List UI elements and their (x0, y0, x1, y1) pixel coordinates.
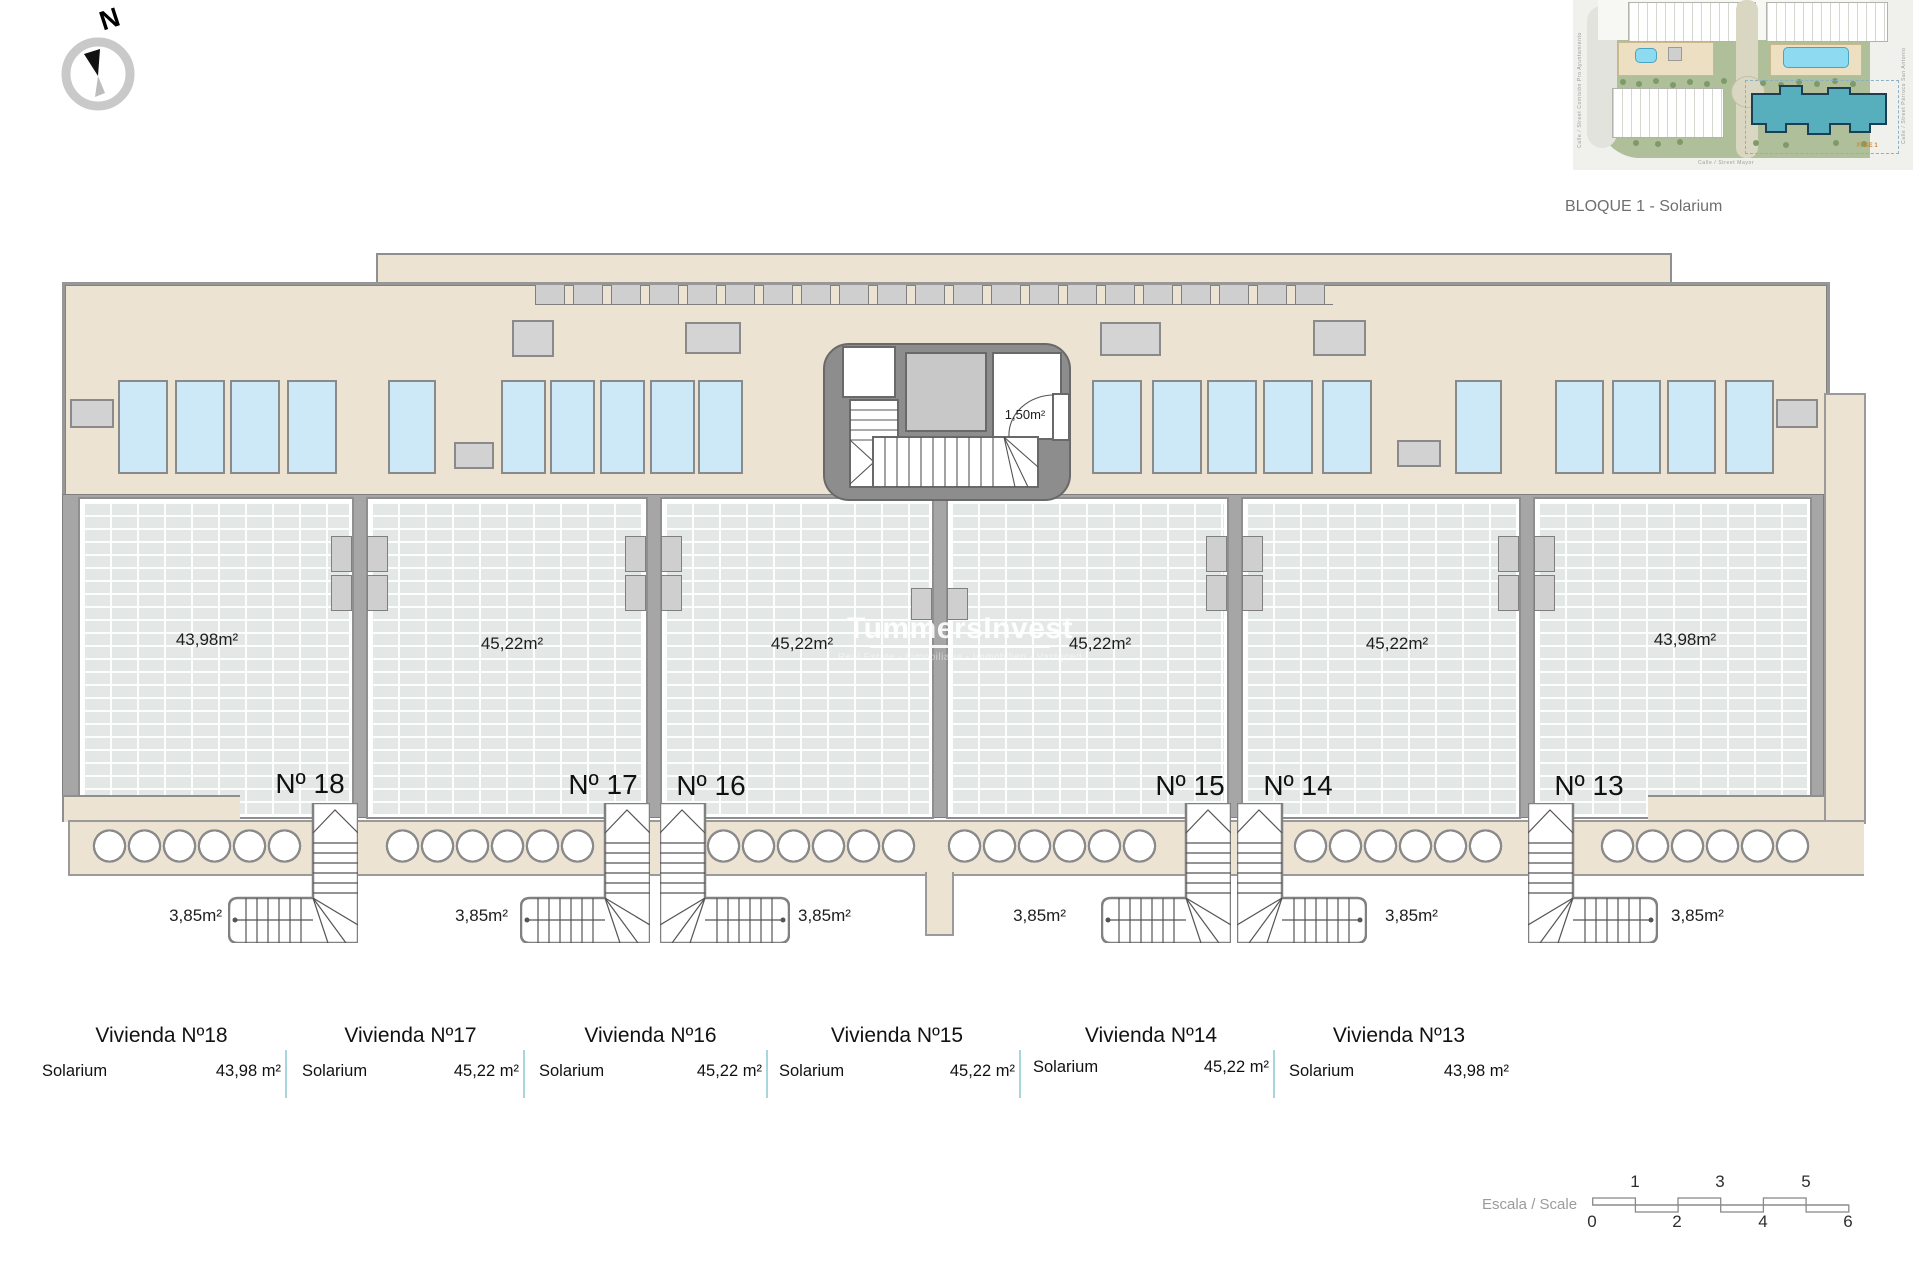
sun-panel (175, 380, 225, 474)
legend-title: Vivienda Nº13 (1285, 1024, 1513, 1048)
legend-column-16: Vivienda Nº16 Solarium45,22 m² (535, 1024, 766, 1098)
legend-column-18: Vivienda Nº18 Solarium43,98 m² (38, 1024, 285, 1098)
sun-panel (698, 380, 743, 474)
exterior-stair-14 (1237, 803, 1367, 943)
tile-floor (1538, 502, 1807, 814)
watermark-subtitle: Real Estate - Inmobiliaria - Immobilien … (810, 652, 1110, 663)
sun-panel (388, 380, 436, 474)
legend-divider (1273, 1050, 1275, 1098)
legend-room: Solarium (1289, 1062, 1354, 1081)
exterior-stair-18 (228, 803, 358, 943)
stair-area-label-14: 3,85m² (1385, 906, 1467, 926)
compass: N (50, 4, 160, 124)
roof-vent (1534, 575, 1555, 611)
sun-panel (1092, 380, 1142, 474)
exterior-stair-13 (1528, 803, 1658, 943)
roof-vent (1498, 575, 1519, 611)
solarium-area-label-17: 45,22m² (481, 634, 543, 654)
site-phase-label: FASE 1 (1857, 143, 1878, 149)
roof-vent (661, 575, 682, 611)
side-path-right (1824, 393, 1866, 824)
stair-area-label-13: 3,85m² (1671, 906, 1753, 926)
legend-divider (523, 1050, 525, 1098)
skylight (685, 322, 741, 354)
site-trees-row-2 (1633, 140, 1639, 146)
sun-panel (501, 380, 546, 474)
skylight (1100, 322, 1161, 356)
scale-tick: 4 (1758, 1212, 1767, 1232)
site-plan-thumbnail: FASE 1 Calle / Street Comisión Pro Ayunt… (1573, 0, 1913, 170)
solarium-area-label-15: 45,22m² (1069, 634, 1131, 654)
legend-divider (766, 1050, 768, 1098)
legend-room: Solarium (779, 1062, 844, 1081)
sun-panel (1322, 380, 1372, 474)
sun-panel (287, 380, 337, 474)
legend-divider (285, 1050, 287, 1098)
site-deck-left (1618, 42, 1714, 76)
exterior-stair-16 (660, 803, 790, 943)
solarium-area-label-13: 43,98m² (1654, 630, 1716, 650)
unit-number-14: Nº 14 (1263, 770, 1332, 802)
stair-area-label-17: 3,85m² (426, 906, 508, 926)
sun-panel (230, 380, 280, 474)
legend-divider (1019, 1050, 1021, 1098)
thumbnail-caption: BLOQUE 1 - Solarium (1565, 198, 1722, 216)
legend-value: 43,98 m² (1444, 1062, 1509, 1081)
legend-title: Vivienda Nº15 (775, 1024, 1019, 1048)
legend-room: Solarium (1033, 1058, 1098, 1077)
scale-bar-icon (1592, 1192, 1850, 1218)
unit-number-16: Nº 16 (676, 770, 745, 802)
walkway-stem (925, 872, 954, 936)
legend-title: Vivienda Nº18 (38, 1024, 285, 1048)
roof-vent (1206, 536, 1227, 572)
roof-vent (331, 575, 352, 611)
legend-title: Vivienda Nº14 (1029, 1024, 1273, 1048)
roof-vent (1242, 575, 1263, 611)
legend-room: Solarium (42, 1062, 107, 1081)
legend-room: Solarium (302, 1062, 367, 1081)
boundary-step-left (62, 795, 240, 822)
sun-panel (600, 380, 645, 474)
skylight (1313, 320, 1366, 356)
sun-panel (1612, 380, 1661, 474)
unit-number-13: Nº 13 (1554, 770, 1623, 802)
tile-floor (371, 502, 643, 814)
site-pool-large (1783, 47, 1849, 68)
sun-panel (118, 380, 168, 474)
site-pool-small (1635, 48, 1657, 63)
ac-unit-right (1776, 399, 1818, 428)
street-label-right: Calle / Street Párroco San Antonio (1901, 14, 1907, 144)
roof-vent (367, 575, 388, 611)
legend-column-13: Vivienda Nº13 Solarium43,98 m² (1285, 1024, 1513, 1098)
roof-vent (625, 575, 646, 611)
roof-vent (1534, 536, 1555, 572)
solarium-area-label-18: 43,98m² (176, 630, 238, 650)
site-trees-row (1620, 79, 1626, 85)
roof-vent (1242, 536, 1263, 572)
exterior-stair-17 (520, 803, 650, 943)
legend-title: Vivienda Nº16 (535, 1024, 766, 1048)
legend-value: 43,98 m² (216, 1062, 281, 1081)
compass-icon (50, 18, 150, 118)
legend-value: 45,22 m² (950, 1062, 1015, 1081)
skylight (512, 320, 554, 357)
core-area-label: 1,50m² (990, 407, 1060, 422)
roof-vent (625, 536, 646, 572)
roof-vent (1206, 575, 1227, 611)
watermark-title: TummersInvest (810, 612, 1110, 646)
sun-panel (1555, 380, 1604, 474)
sun-panel (550, 380, 595, 474)
roof-vent (661, 536, 682, 572)
sun-panel (1207, 380, 1257, 474)
scale-tick: 2 (1672, 1212, 1681, 1232)
legend-column-14: Vivienda Nº14 Solarium45,22 m² (1029, 1024, 1273, 1098)
street-label-bottom: Calle / Street Mayor (1698, 160, 1754, 166)
watermark-underline (870, 645, 1050, 648)
legend-value: 45,22 m² (697, 1062, 762, 1081)
sun-panel (1455, 380, 1502, 474)
sun-panel (1152, 380, 1202, 474)
boundary-step-right (1648, 795, 1826, 822)
roof-vent (367, 536, 388, 572)
stair-area-label-15: 3,85m² (984, 906, 1066, 926)
scale-tick: 1 (1630, 1172, 1639, 1192)
legend-value: 45,22 m² (1204, 1058, 1269, 1077)
floorplan-page: N FASE 1 Calle / Street Comisión Pro Ayu… (0, 0, 1920, 1280)
ac-unit-left (70, 399, 114, 428)
roof-vent (1498, 536, 1519, 572)
street-label-left: Calle / Street Comisión Pro Ayuntamiento (1577, 18, 1583, 148)
sun-panel (1667, 380, 1716, 474)
ac-unit-mid-left (454, 442, 494, 469)
scale-tick: 0 (1587, 1212, 1596, 1232)
site-structure (1668, 47, 1682, 61)
roof-vent (331, 536, 352, 572)
scale-tick: 3 (1715, 1172, 1724, 1192)
sun-panel (1263, 380, 1313, 474)
unit-number-18: Nº 18 (275, 768, 344, 800)
scale-tick: 5 (1801, 1172, 1810, 1192)
site-highlight-building (1750, 84, 1890, 136)
roof-equipment-row (535, 285, 1333, 305)
unit-number-15: Nº 15 (1155, 770, 1224, 802)
unit-number-17: Nº 17 (568, 769, 637, 801)
solarium-area-label-16: 45,22m² (771, 634, 833, 654)
legend-column-17: Vivienda Nº17 Solarium45,22 m² (298, 1024, 523, 1098)
stair-area-label-16: 3,85m² (798, 906, 880, 926)
legend-room: Solarium (539, 1062, 604, 1081)
tile-floor (1246, 502, 1516, 814)
site-building-top-right (1766, 2, 1888, 42)
exterior-stair-15 (1101, 803, 1231, 943)
sun-panel (1725, 380, 1774, 474)
legend-value: 45,22 m² (454, 1062, 519, 1081)
scale-label: Escala / Scale (1482, 1196, 1577, 1213)
legend-column-15: Vivienda Nº15 Solarium45,22 m² (775, 1024, 1019, 1098)
ac-unit-mid-right (1397, 440, 1441, 467)
stair-area-label-18: 3,85m² (140, 906, 222, 926)
sun-panel (650, 380, 695, 474)
scale-tick: 6 (1843, 1212, 1852, 1232)
site-building-bottom-left (1612, 88, 1724, 138)
legend-title: Vivienda Nº17 (298, 1024, 523, 1048)
solarium-area-label-14: 45,22m² (1366, 634, 1428, 654)
